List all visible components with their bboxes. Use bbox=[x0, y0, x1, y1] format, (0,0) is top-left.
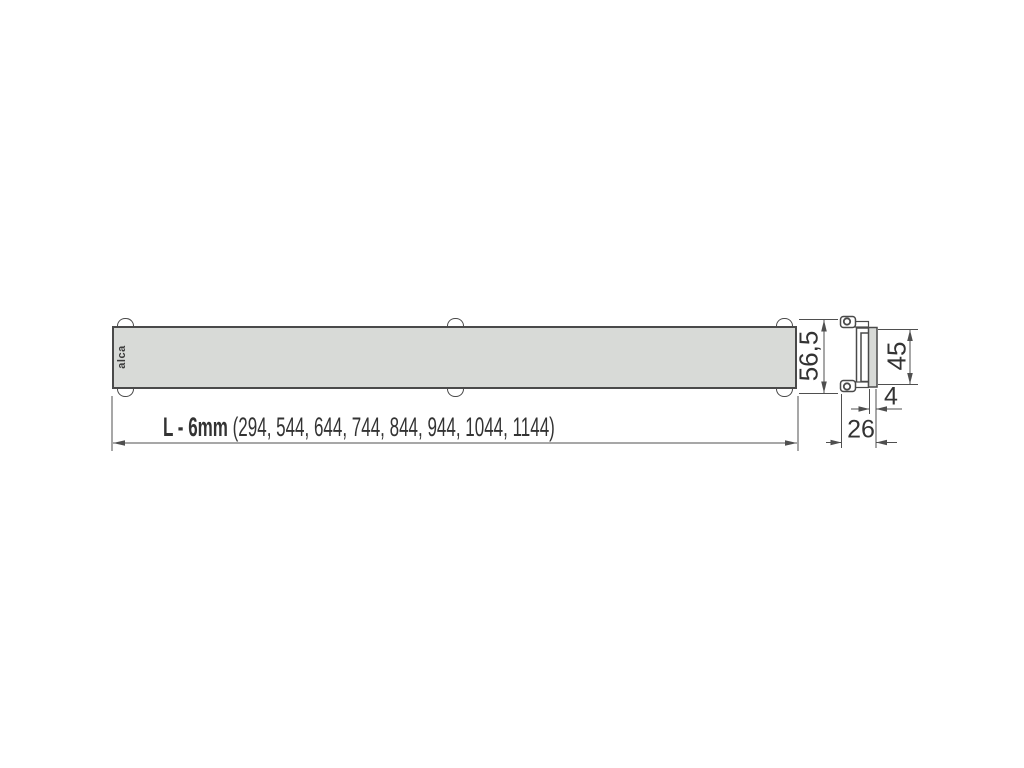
drawing-canvas: alca bbox=[0, 0, 1024, 768]
thickness-dimension-label: 4 bbox=[884, 383, 898, 412]
length-dimension-label: L - 6mm (294, 544, 644, 744, 844, 944, 1… bbox=[163, 413, 555, 441]
length-dimension-label-values: (294, 544, 644, 744, 844, 944, 1044, 114… bbox=[233, 412, 555, 442]
bracket-channel bbox=[857, 328, 870, 387]
length-dimension-label-bold: L - 6mm bbox=[163, 412, 228, 442]
height-dimension-label: 45 bbox=[882, 342, 913, 371]
side-view-profile bbox=[841, 317, 878, 392]
dimension-linework bbox=[0, 0, 1024, 768]
grate-plate-section bbox=[869, 328, 878, 388]
width-dimension-label: 56,5 bbox=[794, 331, 825, 382]
depth-dimension-label: 26 bbox=[847, 416, 875, 445]
